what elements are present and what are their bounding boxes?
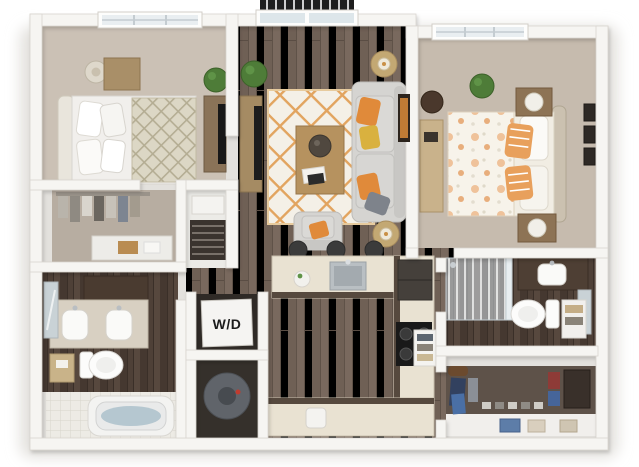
closet-bench — [564, 370, 590, 408]
walk-in-shower — [446, 258, 512, 320]
wall-frame — [584, 148, 595, 165]
pillow — [76, 139, 104, 176]
floor-plan-page: W/D — [0, 0, 639, 467]
wall-frame — [584, 126, 595, 143]
faucet — [73, 306, 78, 311]
wall-bathroom-right-west-a — [436, 258, 446, 272]
burner — [400, 348, 412, 360]
hvac-unit — [192, 196, 224, 214]
wall-closet-right-west-b — [436, 420, 446, 438]
hanging-clothes — [82, 196, 92, 216]
wall-bathroom-right-south — [436, 346, 598, 356]
hall-linen-shelf — [414, 330, 436, 366]
water-heater-cap — [218, 387, 236, 405]
burner — [400, 328, 412, 340]
soap — [56, 360, 68, 368]
shower-head — [450, 262, 456, 268]
hanging-clothes — [106, 196, 116, 218]
heater-valve — [236, 390, 241, 395]
hanging-clothes — [118, 196, 128, 222]
towel — [565, 317, 583, 325]
toilet-seat — [96, 357, 116, 373]
balcony — [256, 0, 358, 26]
wall-bedroom-left-east-upper — [226, 14, 238, 136]
bath-water — [101, 406, 161, 426]
tv — [218, 104, 226, 164]
toilet-tank — [546, 300, 559, 328]
striped-accent-pillow — [504, 123, 534, 160]
table-lamp-top — [92, 68, 101, 77]
wall-bedroom-right-south-b — [454, 248, 608, 258]
washer-dryer-label: W/D — [213, 316, 242, 332]
trellis-duvet — [132, 98, 196, 182]
wall-bedroom-right-south-a — [406, 248, 418, 258]
balcony-door-glass — [260, 13, 305, 23]
wall-art-canvas — [400, 98, 408, 138]
sink — [106, 310, 132, 340]
table-lamp — [528, 219, 546, 237]
plant-leaf — [208, 72, 216, 80]
storage-box — [560, 420, 577, 432]
storage-cabinet — [84, 276, 148, 300]
striped-accent-pillow — [504, 165, 533, 202]
wall-laundry-east — [258, 292, 268, 438]
pillow — [100, 139, 126, 173]
sink — [62, 310, 88, 340]
wall-bottom — [30, 438, 608, 450]
towel — [565, 305, 583, 313]
folded-item-blue — [500, 419, 520, 432]
plant-leaf — [474, 78, 482, 86]
decor-tray — [309, 135, 331, 157]
hanging-clothes — [548, 372, 560, 389]
tray-item — [314, 140, 320, 146]
floral-duvet — [448, 112, 514, 216]
desk-item — [424, 132, 438, 142]
bedroom-right-window — [432, 24, 528, 40]
duffel-bag — [448, 366, 468, 376]
towel — [417, 354, 433, 361]
small-appliance — [306, 408, 326, 428]
wall-bathroom-left-east — [176, 300, 186, 438]
hanging-clothes — [468, 378, 478, 402]
faucet — [345, 259, 350, 264]
vase — [294, 271, 310, 287]
accent-pillow-gold — [358, 125, 380, 151]
bedroom-left-window — [98, 12, 202, 28]
plant-leaf — [246, 66, 255, 75]
sink — [538, 264, 566, 285]
hanging-clothes — [58, 196, 68, 218]
towel — [417, 344, 433, 351]
potted-plant — [204, 68, 228, 92]
hanging-clothes — [130, 196, 140, 217]
dresser-item — [118, 241, 138, 254]
faucet — [550, 261, 555, 266]
hanging-clothes — [451, 393, 466, 414]
mechanical-closet-contents — [190, 196, 226, 260]
wall-left — [30, 14, 42, 450]
table-lamp — [525, 93, 543, 111]
wall-right — [596, 26, 608, 450]
faucet — [117, 306, 122, 311]
wall-bedroom-left-east-lower — [226, 180, 238, 268]
lamp-base — [384, 232, 388, 236]
potted-plant — [470, 74, 494, 98]
potted-plant — [241, 61, 267, 87]
hanging-clothes — [94, 196, 104, 221]
wall-closet-left-east — [176, 180, 186, 272]
wall-laundry-west — [186, 292, 196, 438]
cabinet-face — [268, 398, 434, 404]
dresser-item — [144, 242, 160, 253]
lamp-base — [382, 62, 386, 66]
pillow — [76, 100, 104, 137]
cabinet-face — [272, 292, 394, 298]
tv — [254, 106, 262, 180]
closet-rod — [56, 192, 150, 196]
floor-plan-render: W/D — [0, 0, 639, 467]
wall-closet-right-west-a — [436, 356, 446, 372]
wall-bathroom-left-north — [30, 262, 186, 272]
wall-laundry-divider — [186, 350, 268, 360]
vase-greens — [298, 274, 303, 279]
toilet-seat — [518, 306, 538, 322]
desk-chair — [421, 91, 443, 113]
sink-basin — [334, 266, 362, 286]
hanging-clothes — [70, 196, 80, 222]
towel — [417, 334, 433, 341]
wall-frame — [584, 104, 595, 121]
balcony-railing — [260, 0, 354, 10]
wall-bedroom-left-south-a — [30, 180, 140, 190]
balcony-door-glass — [309, 13, 354, 23]
storage-box — [528, 420, 545, 432]
nightstand — [104, 58, 140, 90]
hanging-clothes — [548, 391, 560, 406]
